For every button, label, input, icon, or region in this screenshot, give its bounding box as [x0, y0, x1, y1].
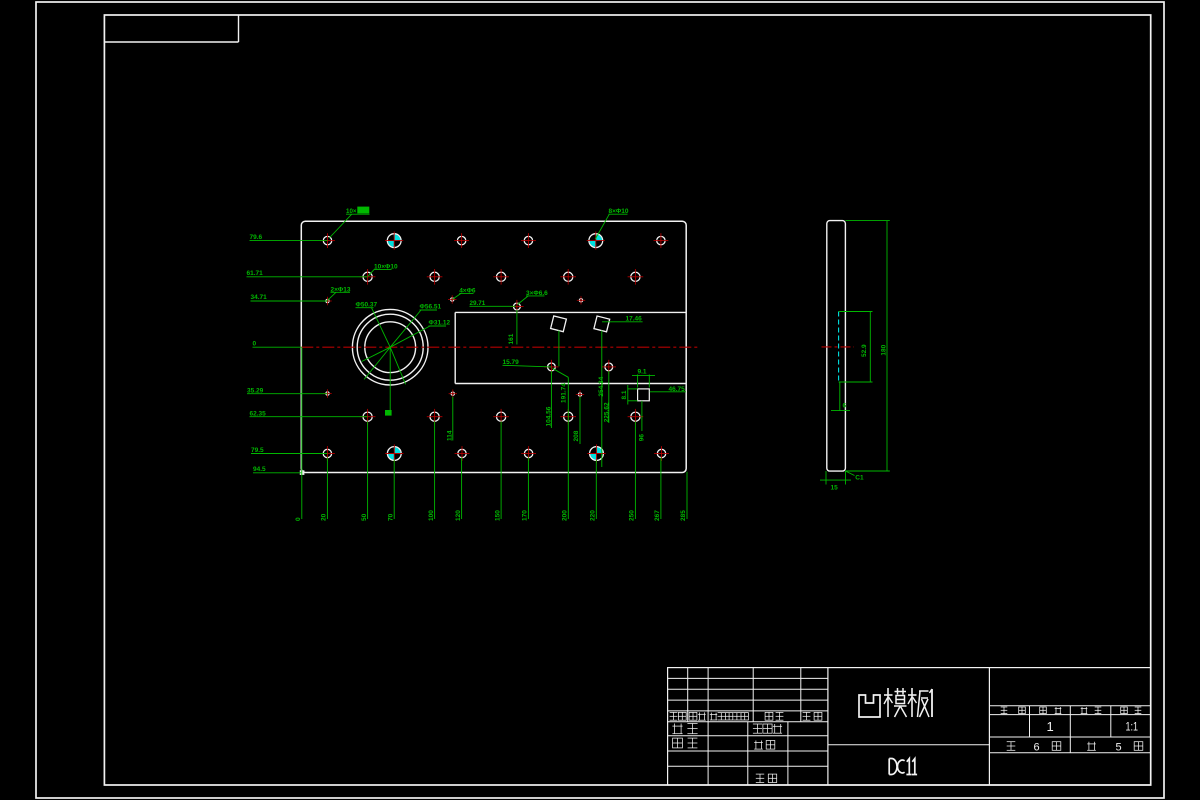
svg-text:79.5: 79.5 [251, 447, 264, 454]
svg-text:150: 150 [494, 510, 501, 521]
svg-text:254.34: 254.34 [598, 376, 605, 396]
svg-text:34.71: 34.71 [251, 294, 268, 301]
svg-text:29.71: 29.71 [470, 300, 486, 307]
svg-text:0: 0 [295, 517, 302, 521]
svg-text:1:1: 1:1 [1126, 720, 1139, 734]
svg-text:0: 0 [253, 341, 257, 348]
svg-text:15.79: 15.79 [503, 359, 520, 366]
svg-text:20: 20 [321, 513, 328, 521]
svg-text:6: 6 [843, 403, 847, 410]
svg-text:C1: C1 [855, 474, 864, 481]
svg-text:267: 267 [654, 510, 661, 521]
svg-text:191.74: 191.74 [561, 383, 568, 403]
svg-text:100: 100 [428, 510, 435, 521]
svg-text:200: 200 [561, 510, 568, 521]
svg-text:79.6: 79.6 [250, 234, 263, 241]
svg-text:250: 250 [629, 510, 636, 521]
svg-text:8.1: 8.1 [621, 390, 628, 399]
svg-text:114: 114 [446, 430, 453, 441]
svg-text:120: 120 [455, 510, 462, 521]
svg-text:6: 6 [1034, 742, 1040, 754]
svg-text:180: 180 [880, 344, 887, 355]
svg-text:285: 285 [680, 510, 687, 521]
svg-text:161: 161 [508, 333, 515, 344]
svg-text:170: 170 [522, 510, 529, 521]
svg-text:70: 70 [387, 513, 394, 521]
svg-text:61.71: 61.71 [247, 270, 264, 277]
svg-text:94.5: 94.5 [253, 466, 266, 473]
svg-text:17.46: 17.46 [626, 316, 643, 323]
svg-text:96: 96 [639, 434, 646, 442]
svg-text:220: 220 [590, 510, 597, 521]
svg-text:208: 208 [573, 430, 580, 441]
svg-text:46.75: 46.75 [669, 386, 686, 393]
svg-text:1: 1 [1047, 719, 1054, 734]
svg-text:225.62: 225.62 [603, 402, 610, 422]
svg-text:50: 50 [361, 513, 368, 521]
svg-text:52.9: 52.9 [861, 344, 868, 357]
svg-text:5: 5 [1116, 742, 1122, 754]
svg-text:9.1: 9.1 [638, 369, 647, 376]
svg-text:15: 15 [831, 485, 839, 492]
svg-text:104.56: 104.56 [546, 406, 553, 426]
